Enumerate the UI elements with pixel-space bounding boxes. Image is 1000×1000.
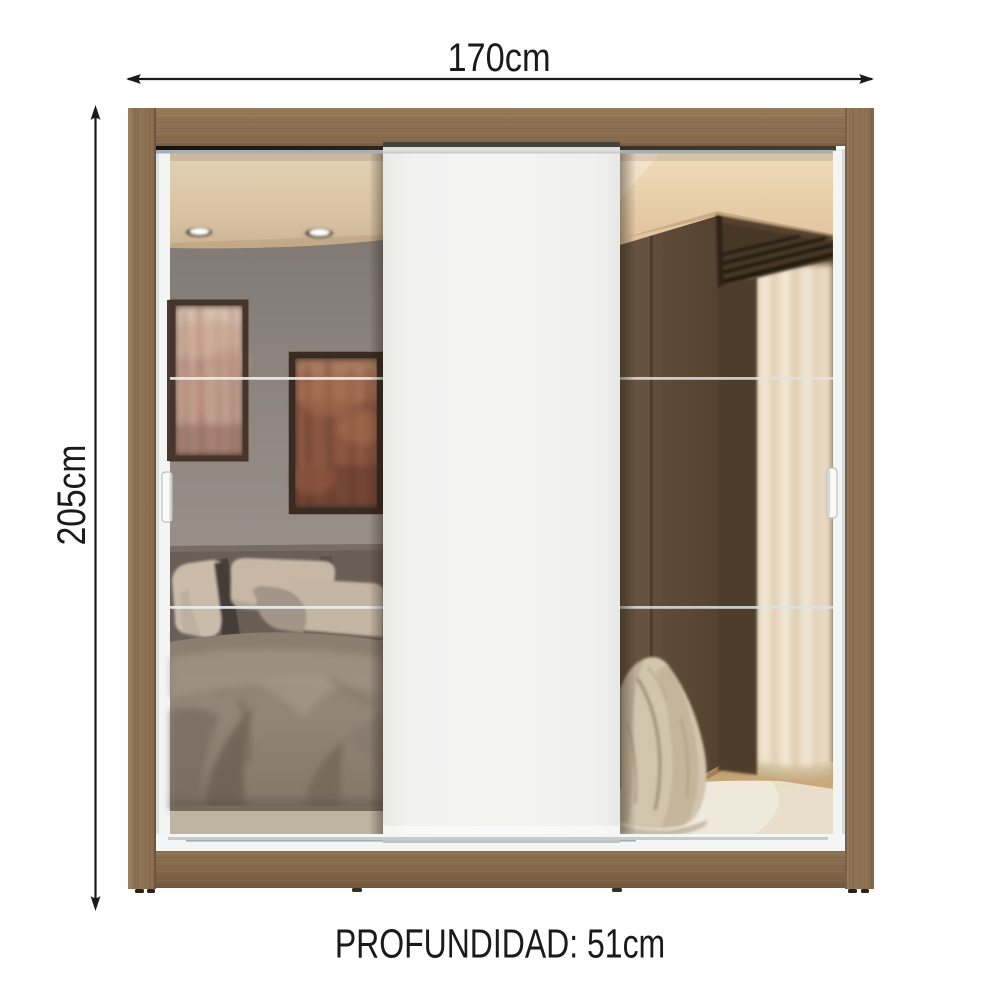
svg-text:PROFUNDIDAD: 51cm: PROFUNDIDAD: 51cm: [335, 921, 665, 967]
svg-text:170cm: 170cm: [447, 35, 550, 80]
svg-text:205cm: 205cm: [49, 445, 93, 546]
